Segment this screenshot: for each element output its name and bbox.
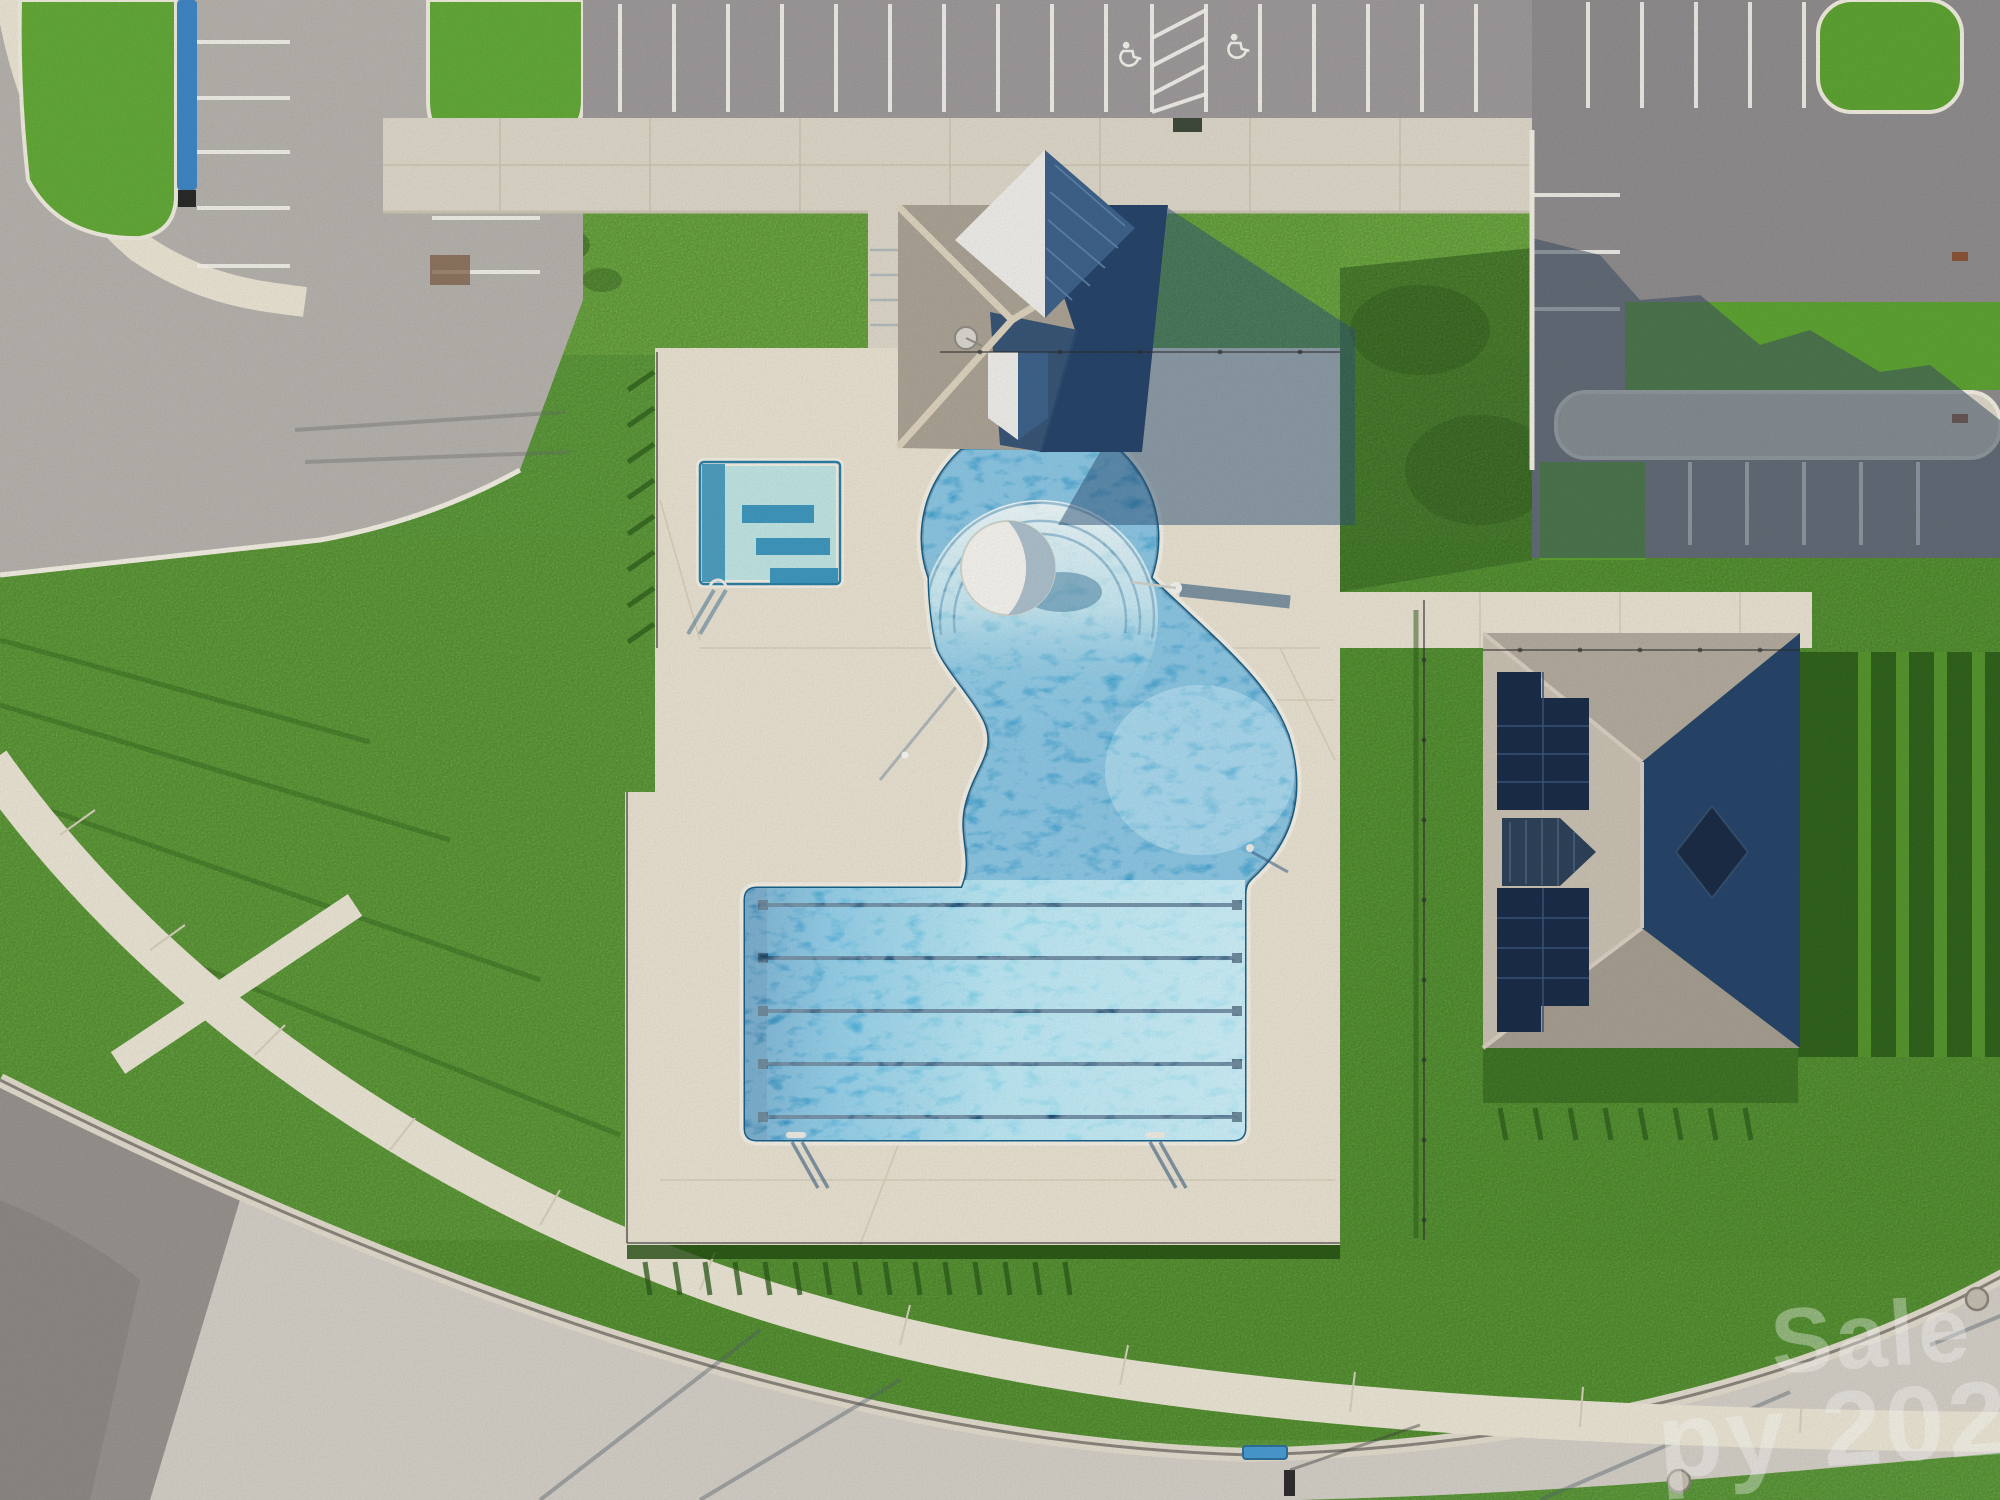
photo-grain xyxy=(0,0,2000,1500)
aerial-photo: Sale py 2025 xyxy=(0,0,2000,1500)
scene-svg: Sale py 2025 xyxy=(0,0,2000,1500)
